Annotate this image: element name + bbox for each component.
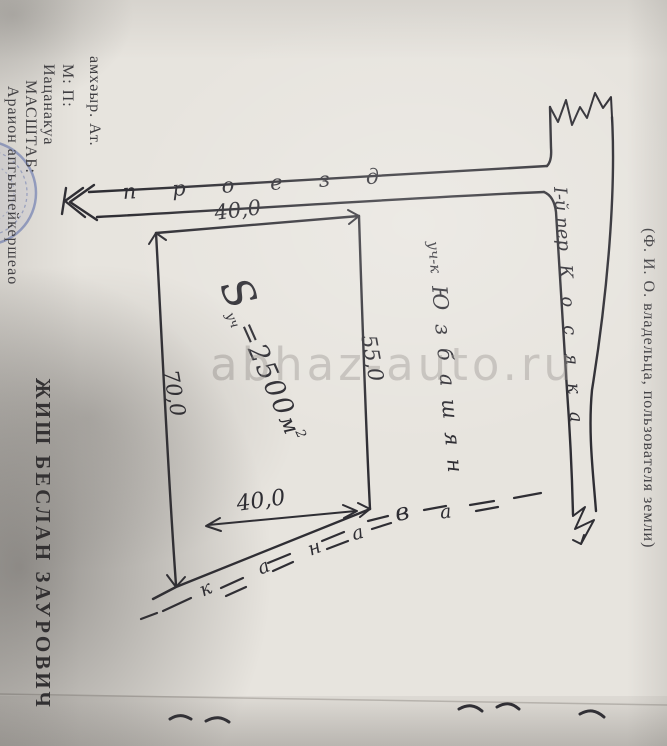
form-line-4: МАСШТАБ: (21, 80, 39, 174)
owner-name: ЖИШ БЕСЛАН ЗАУРОВИЧ (30, 378, 55, 710)
form-line-2: М: П: (58, 64, 76, 108)
lane-label-prefix: I-й пер (549, 186, 574, 252)
plot-label-prefix: уч-к (424, 240, 445, 274)
paper-crease (0, 694, 667, 705)
form-line-3: Иацанакуа (39, 64, 57, 145)
photographed-land-plan-document: амхәыр. Ат. М: П: Иацанакуа МАСШТАБ: Ара… (0, 0, 667, 746)
form-line-1: амхәыр. Ат. (85, 56, 103, 147)
pen-marks (170, 704, 604, 722)
form-line-5: Араион апгьыпейкершеао (3, 86, 21, 285)
watermark-text: abhaz-auto.ru (210, 338, 576, 391)
owner-caption: (Ф. И. О. владельца, пользователя земли) (639, 228, 657, 548)
